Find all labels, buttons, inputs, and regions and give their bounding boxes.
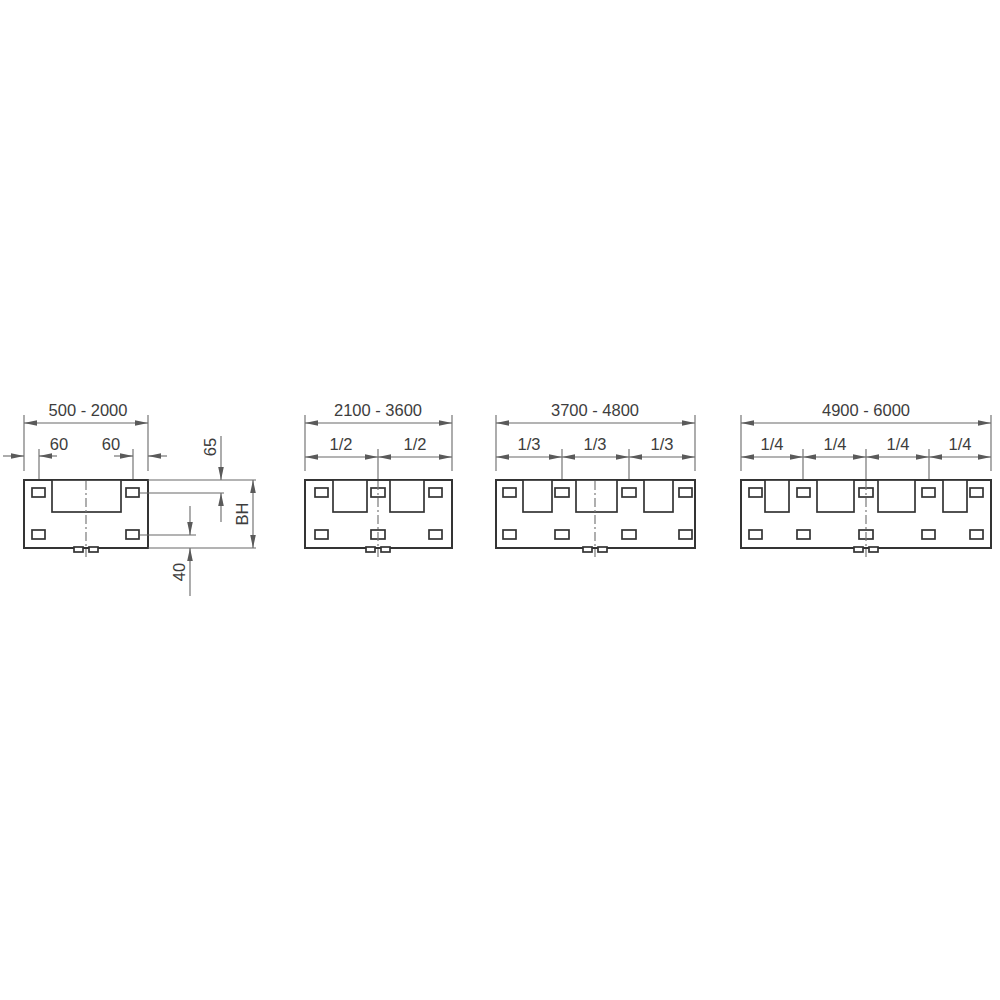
mounting-slot — [622, 488, 636, 497]
panel-group-3: 3700 - 4800 1/3 1/3 1/3 — [496, 401, 695, 557]
mounting-slot — [922, 530, 935, 539]
mounting-slot — [32, 530, 45, 539]
bottom-tab — [869, 547, 878, 552]
bottom-tab — [89, 547, 98, 552]
fraction-label: 1/4 — [949, 435, 972, 453]
mounting-slot — [970, 488, 983, 497]
bottom-tab — [74, 547, 83, 552]
fraction-label: 1/2 — [330, 435, 353, 453]
mounting-slot — [749, 488, 762, 497]
mounting-slot — [32, 488, 45, 497]
mounting-slot — [749, 530, 762, 539]
range-label: 4900 - 6000 — [822, 401, 910, 419]
mounting-slot — [970, 530, 983, 539]
cutout-rect — [943, 480, 967, 512]
mounting-slot — [555, 488, 569, 497]
mounting-slot — [679, 530, 692, 539]
mounting-slot — [503, 488, 516, 497]
bottom-tab — [381, 547, 390, 552]
mounting-slot — [126, 530, 139, 539]
panel-group-1: 500 - 2000 60 60 65 BH 40 — [3, 401, 256, 596]
cutout-rect — [765, 480, 789, 512]
mounting-slot — [797, 488, 810, 497]
panel-group-4: 4900 - 6000 1/4 1/4 1/4 1/4 — [741, 401, 991, 557]
mounting-slot — [797, 530, 810, 539]
bottom-tab — [583, 547, 592, 552]
bottom-tab — [854, 547, 863, 552]
cutout-rect — [333, 480, 367, 512]
mounting-slot — [679, 488, 692, 497]
range-label: 2100 - 3600 — [334, 401, 422, 419]
panel-group-2: 2100 - 3600 1/2 1/2 — [305, 401, 452, 557]
fraction-label: 1/3 — [518, 435, 541, 453]
bottom-tab — [366, 547, 375, 552]
cutout-rect — [644, 480, 673, 512]
offset-left-label: 60 — [50, 435, 68, 453]
fraction-label: 1/2 — [404, 435, 427, 453]
cutout-rect — [523, 480, 552, 512]
bottom-slot-offset-label: 40 — [170, 563, 188, 581]
mounting-slot — [429, 488, 442, 497]
top-slot-offset-label: 65 — [201, 438, 219, 456]
fraction-label: 1/3 — [584, 435, 607, 453]
fraction-label: 1/4 — [824, 435, 847, 453]
cutout-rect — [878, 480, 915, 512]
range-label: 3700 - 4800 — [551, 401, 639, 419]
drawing-canvas: 500 - 2000 60 60 65 BH 40 — [0, 0, 1000, 1000]
bottom-tab — [598, 547, 607, 552]
mounting-slot — [315, 530, 328, 539]
mounting-slot — [126, 488, 139, 497]
mounting-slot — [622, 530, 636, 539]
technical-drawing: 500 - 2000 60 60 65 BH 40 — [0, 0, 1000, 1000]
offset-right-label: 60 — [102, 435, 120, 453]
mounting-slot — [922, 488, 935, 497]
cutout-rect — [390, 480, 424, 512]
mounting-slot — [429, 530, 442, 539]
cutout-rect — [817, 480, 854, 512]
mounting-slot — [555, 530, 569, 539]
cutout-rect — [576, 480, 617, 512]
fraction-label: 1/3 — [651, 435, 674, 453]
range-label: 500 - 2000 — [49, 401, 128, 419]
fraction-label: 1/4 — [887, 435, 910, 453]
build-height-label: BH — [233, 503, 251, 526]
mounting-slot — [503, 530, 516, 539]
mounting-slot — [315, 488, 328, 497]
fraction-label: 1/4 — [761, 435, 784, 453]
